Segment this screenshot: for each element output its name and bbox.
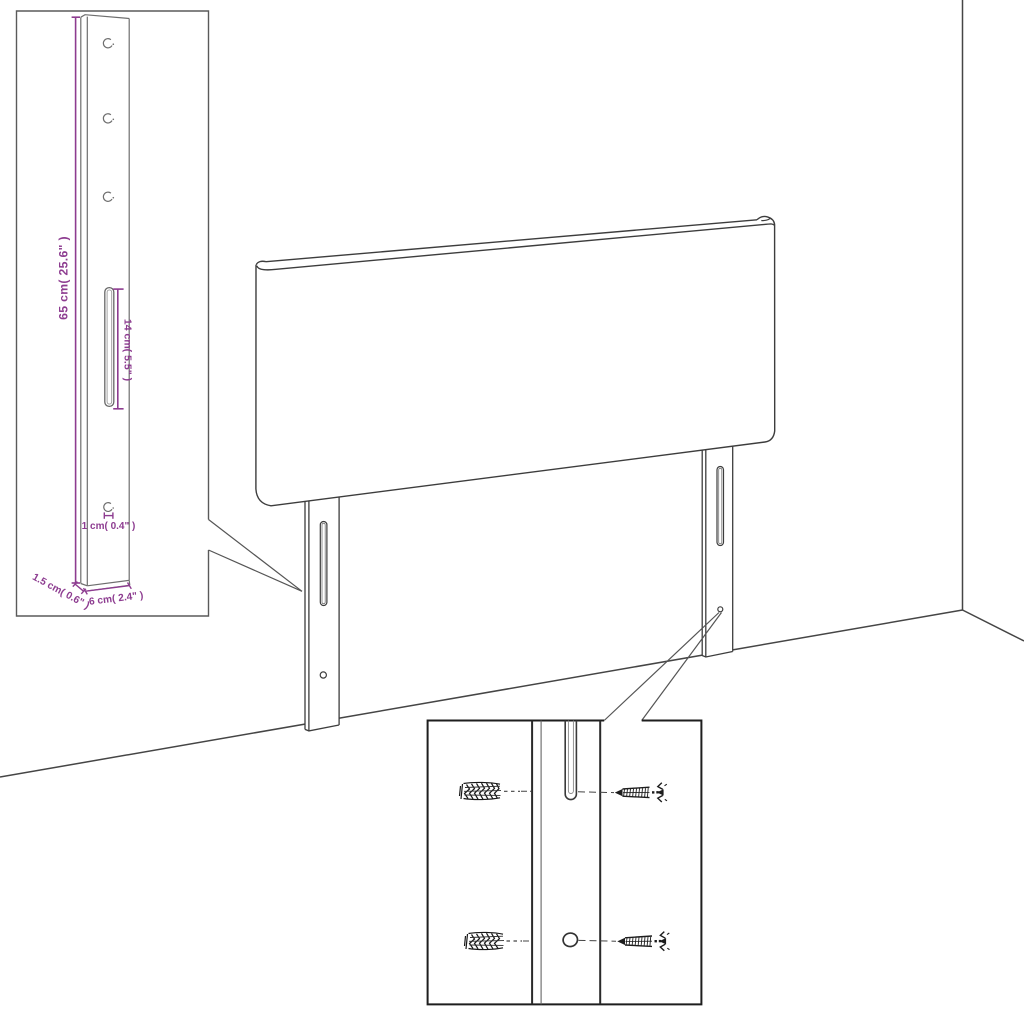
svg-text:6 cm( 2.4" ): 6 cm( 2.4" ) — [88, 590, 144, 608]
svg-text:65 cm( 25.6" ): 65 cm( 25.6" ) — [57, 236, 71, 320]
svg-text:1.5 cm( 0.6" ): 1.5 cm( 0.6" ) — [30, 572, 91, 612]
svg-text:1 cm( 0.4" ): 1 cm( 0.4" ) — [82, 521, 136, 532]
svg-text:14 cm( 5.5" ): 14 cm( 5.5" ) — [122, 319, 134, 381]
